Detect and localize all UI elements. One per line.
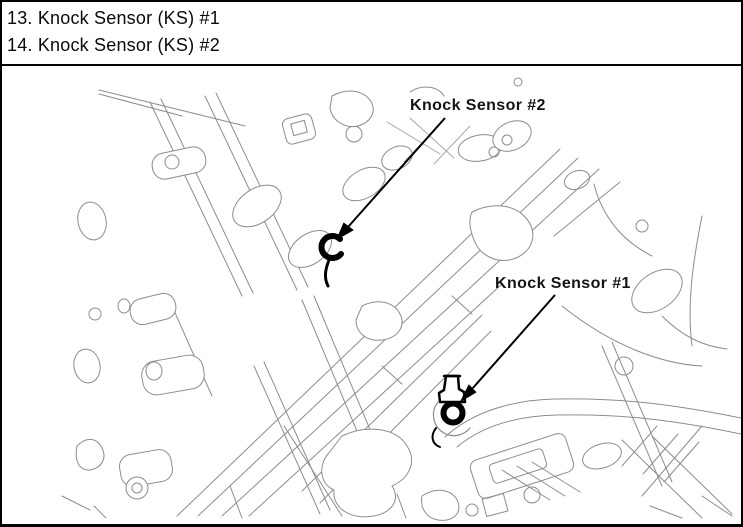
engine-diagram: Knock Sensor #2 Knock Sensor #1 — [2, 66, 741, 522]
parts-legend: 13. Knock Sensor (KS) #1 14. Knock Senso… — [2, 2, 741, 66]
knock-sensor-2-label: Knock Sensor #2 — [410, 97, 546, 114]
knock-sensor-1-label: Knock Sensor #1 — [495, 275, 631, 292]
legend-item-13: 13. Knock Sensor (KS) #1 — [7, 5, 741, 32]
knock-sensor-1-marker — [433, 376, 470, 447]
engine-line-art — [62, 78, 741, 520]
engine-diagram-canvas: Knock Sensor #2 Knock Sensor #1 — [2, 66, 741, 522]
legend-item-14: 14. Knock Sensor (KS) #2 — [7, 32, 741, 59]
knock-sensor-1-arrow — [472, 295, 555, 389]
figure-frame: 13. Knock Sensor (KS) #1 14. Knock Senso… — [0, 0, 743, 527]
